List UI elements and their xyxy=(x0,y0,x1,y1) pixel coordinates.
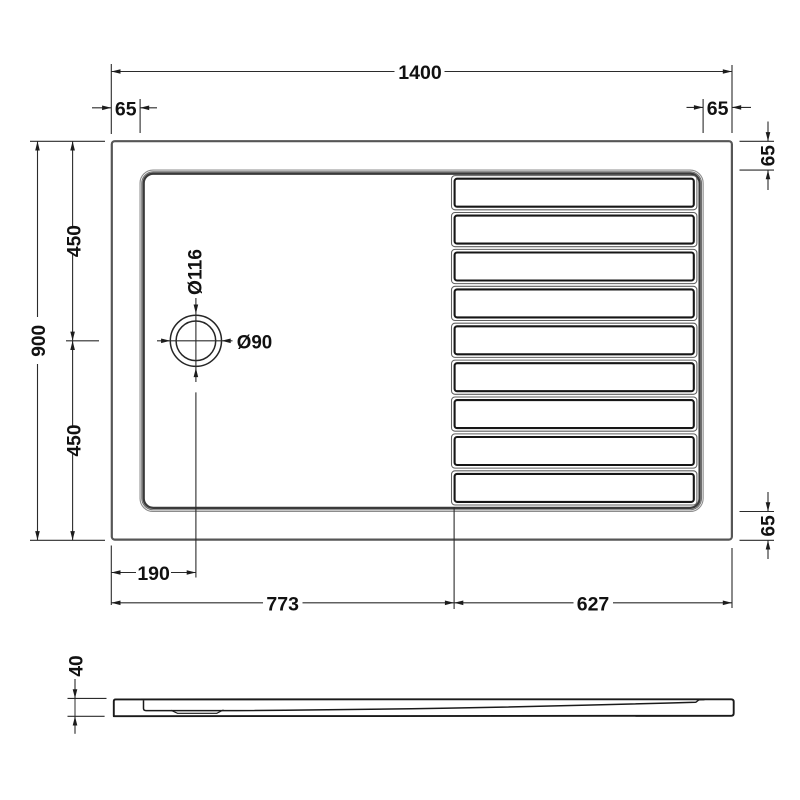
svg-text:Ø116: Ø116 xyxy=(186,249,207,295)
svg-text:900: 900 xyxy=(29,325,50,357)
svg-text:Ø90: Ø90 xyxy=(237,331,273,353)
svg-text:65: 65 xyxy=(758,145,779,167)
svg-text:773: 773 xyxy=(266,593,299,615)
svg-text:627: 627 xyxy=(577,593,610,615)
svg-text:190: 190 xyxy=(137,563,170,585)
svg-text:40: 40 xyxy=(66,655,87,676)
svg-text:1400: 1400 xyxy=(398,62,442,84)
svg-text:65: 65 xyxy=(758,515,779,537)
svg-text:450: 450 xyxy=(65,225,86,257)
svg-text:65: 65 xyxy=(707,98,729,120)
svg-text:65: 65 xyxy=(115,98,137,120)
svg-text:450: 450 xyxy=(65,424,86,456)
